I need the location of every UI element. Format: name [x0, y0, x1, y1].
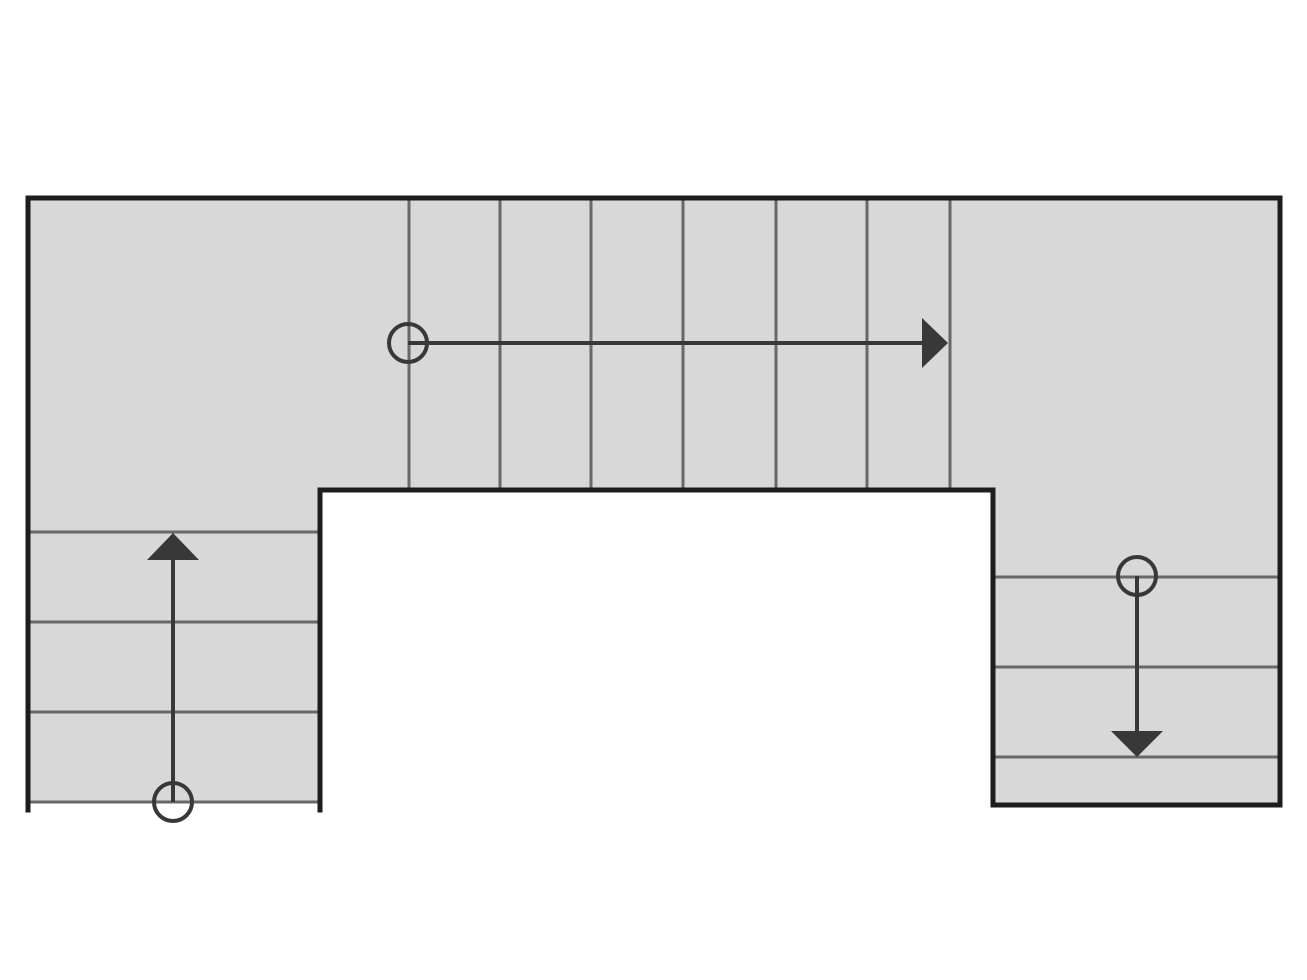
stair-plan-page: [0, 0, 1307, 980]
stair-plan-diagram: [0, 0, 1307, 980]
stair-tread-area: [28, 198, 1280, 805]
